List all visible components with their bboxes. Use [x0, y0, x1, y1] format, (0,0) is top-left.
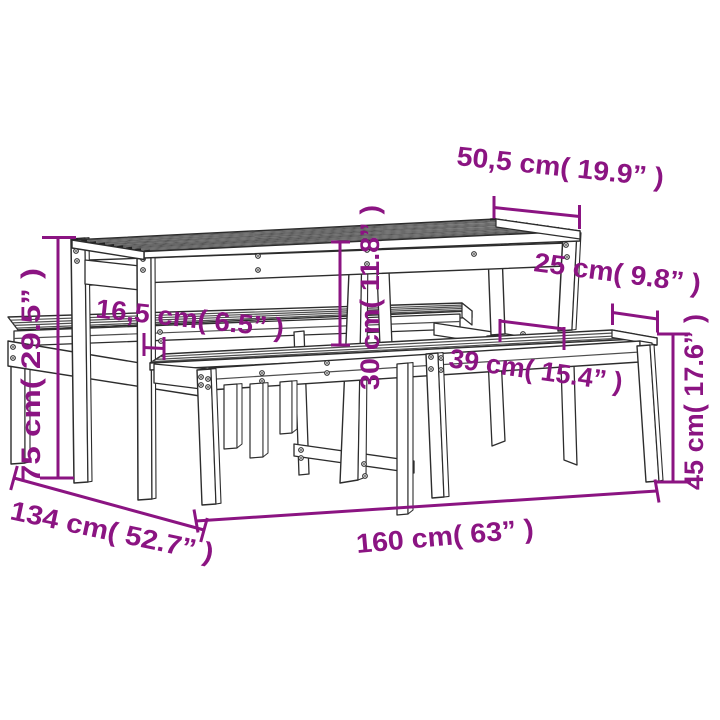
svg-text:30 cm( 11.8” ): 30 cm( 11.8” ) — [355, 205, 385, 390]
svg-text:45 cm( 17.6” ): 45 cm( 17.6” ) — [679, 314, 709, 490]
svg-text:75 cm( 29.5” ): 75 cm( 29.5” ) — [16, 268, 46, 483]
